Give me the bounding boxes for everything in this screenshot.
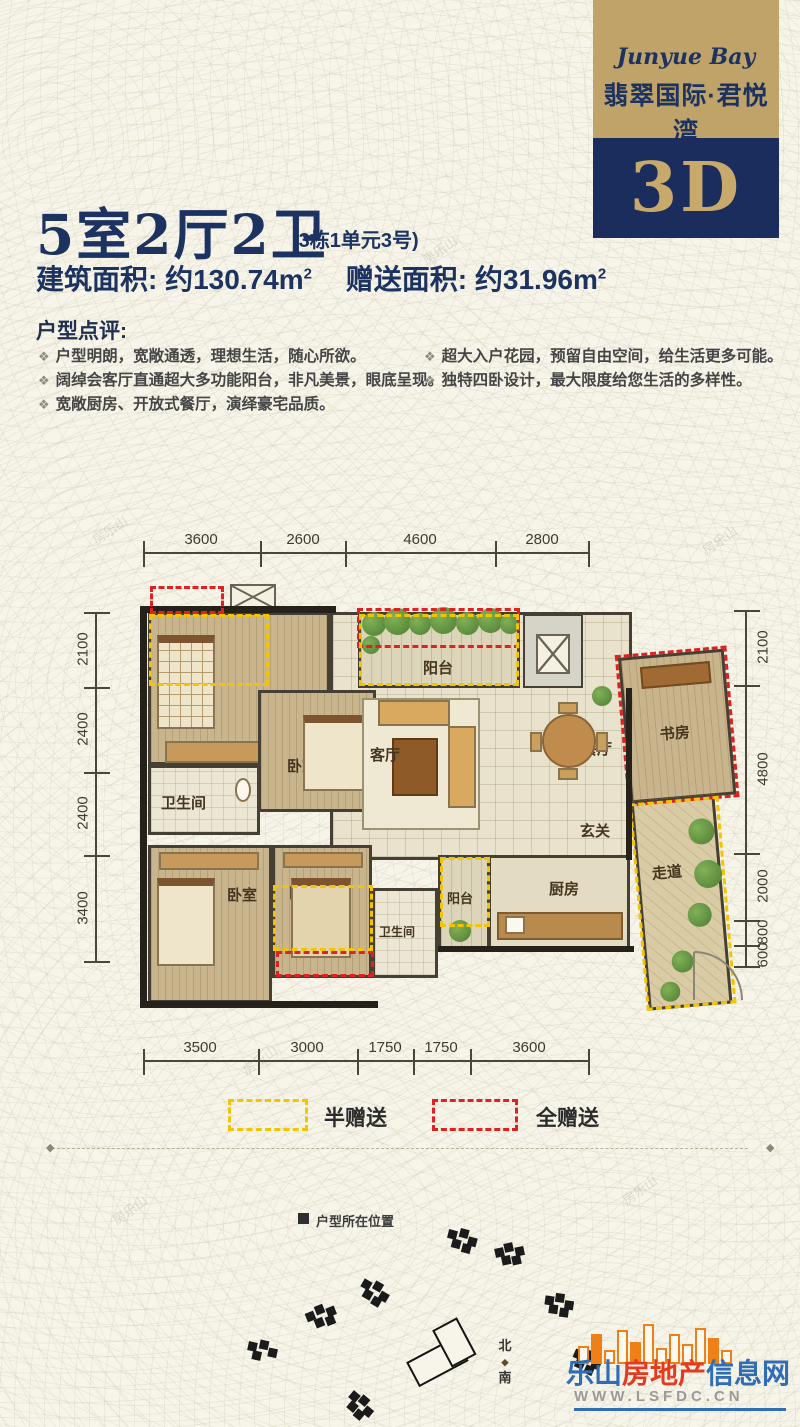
logo-name: 乐山房地产信息网 bbox=[566, 1352, 790, 1392]
north-arrow: 北 ◆ 南 bbox=[492, 1338, 518, 1386]
build-area-sup: 2 bbox=[304, 266, 312, 283]
wall-segment bbox=[626, 688, 632, 860]
plant-icon bbox=[409, 613, 431, 635]
watermark-text: 房乐山 bbox=[698, 521, 741, 559]
brand-banner-gold-panel: Junyue Bay 翡翠国际·君悦湾 bbox=[593, 0, 779, 138]
brand-banner: Junyue Bay 翡翠国际·君悦湾 3D bbox=[593, 0, 779, 238]
bed-icon bbox=[291, 878, 351, 958]
plant-icon bbox=[687, 902, 713, 928]
room-label: 卫生间 bbox=[161, 792, 206, 813]
dim-tick bbox=[413, 1049, 415, 1075]
area-line: 建筑面积: 约130.74m2 赠送面积: 约31.96m2 bbox=[36, 258, 606, 298]
location-legend-label: 户型所在位置 bbox=[316, 1211, 394, 1230]
room-balcony-small: 阳台 bbox=[438, 855, 490, 950]
room-bedroom-bottom-left: 卧室 bbox=[148, 845, 272, 1003]
chair-icon bbox=[558, 768, 578, 780]
room-label: 书房 bbox=[659, 721, 691, 745]
dim-label: 2800 bbox=[525, 531, 558, 548]
dim-line-bottom: 3500 3000 1750 1750 3600 bbox=[143, 1060, 590, 1062]
wall-segment bbox=[140, 1001, 378, 1008]
dim-tick bbox=[84, 855, 110, 857]
dim-label: 2600 bbox=[286, 531, 319, 548]
bed-icon bbox=[303, 715, 365, 791]
wall-segment bbox=[438, 946, 634, 952]
dim-tick bbox=[588, 1049, 590, 1075]
dim-label: 600 bbox=[755, 942, 772, 967]
room-bath-upper: 卫生间 bbox=[148, 765, 260, 835]
bullet-icon: ❖ bbox=[38, 349, 50, 364]
dim-tick bbox=[588, 541, 590, 567]
unit-note: (3栋1单元3号) bbox=[292, 224, 419, 253]
plant-icon bbox=[659, 981, 681, 1003]
plant-icon bbox=[362, 612, 386, 636]
dim-label: 1750 bbox=[424, 1039, 457, 1056]
sofa-icon bbox=[448, 726, 476, 808]
room-label: 厨房 bbox=[549, 878, 579, 899]
review-item-text: 阔绰会客厅直通超大多功能阳台，非凡美景，眼底呈现。 bbox=[56, 372, 444, 389]
logo-suffix: 信息网 bbox=[706, 1358, 790, 1389]
review-item-text: 宽敞厨房、开放式餐厅，演绎豪宅品质。 bbox=[56, 396, 335, 413]
dim-label: 2000 bbox=[755, 869, 772, 902]
build-area-label: 建筑面积: bbox=[36, 264, 157, 295]
dim-label: 2400 bbox=[75, 796, 92, 829]
brand-script-name: Junyue Bay bbox=[593, 44, 779, 70]
divider-line bbox=[52, 1148, 748, 1149]
plant-icon bbox=[362, 636, 380, 654]
room-label: 客厅 bbox=[370, 744, 400, 765]
dim-tick bbox=[84, 772, 110, 774]
build-area-value: 约130.74m bbox=[165, 264, 304, 295]
bullet-icon: ❖ bbox=[38, 397, 50, 412]
location-legend-swatch bbox=[298, 1213, 309, 1224]
south-label: 南 bbox=[492, 1370, 518, 1386]
room-study: 书房 bbox=[618, 649, 736, 804]
watermark-text: 房乐山 bbox=[108, 1191, 151, 1229]
plant-icon bbox=[456, 612, 479, 635]
chair-icon bbox=[558, 702, 578, 714]
room-label: 卫生间 bbox=[379, 923, 415, 940]
room-label: 阳台 bbox=[423, 657, 453, 678]
dim-tick bbox=[143, 1049, 145, 1075]
plant-icon bbox=[478, 608, 503, 633]
building-cluster bbox=[544, 1295, 554, 1305]
dim-tick bbox=[258, 1049, 260, 1075]
building-cluster bbox=[247, 1341, 258, 1352]
dim-tick bbox=[84, 687, 110, 689]
room-label: 卧室 bbox=[227, 884, 257, 905]
plant-icon bbox=[687, 817, 715, 845]
dim-tick bbox=[84, 961, 110, 963]
dim-tick bbox=[143, 541, 145, 567]
dim-label: 3000 bbox=[290, 1039, 323, 1056]
plant-icon bbox=[693, 859, 723, 889]
sofa-icon bbox=[378, 700, 450, 726]
dim-line-top: 3600 2600 4600 2800 bbox=[143, 552, 590, 554]
dim-label: 4800 bbox=[755, 752, 772, 785]
desk-icon bbox=[640, 661, 712, 689]
dim-tick bbox=[495, 541, 497, 567]
room-label: 走道 bbox=[651, 860, 683, 884]
review-item: ❖户型明朗，宽敞通透，理想生活，随心所欲。 bbox=[38, 344, 366, 366]
dim-tick bbox=[470, 1049, 472, 1075]
highlighted-building-outline bbox=[399, 1314, 490, 1399]
poster-page: 房乐山 房乐山 房乐山 房乐山 房乐山 房乐山 Junyue Bay 翡翠国际·… bbox=[0, 0, 800, 1427]
review-item: ❖超大入户花园，预留自由空间，给生活更多可能。 bbox=[424, 344, 783, 366]
north-label: 北 bbox=[492, 1338, 518, 1354]
review-item-text: 户型明朗，宽敞通透，理想生活，随心所欲。 bbox=[56, 348, 366, 365]
watermark-text: 房乐山 bbox=[88, 511, 131, 549]
dim-label: 3500 bbox=[183, 1039, 216, 1056]
gift-area-label: 赠送面积: bbox=[346, 264, 467, 295]
bed-icon bbox=[157, 878, 215, 966]
review-item-text: 超大入户花园，预留自由空间，给生活更多可能。 bbox=[442, 348, 783, 365]
room-bedroom-top-mid: 卧室 bbox=[258, 690, 376, 812]
sink-icon bbox=[505, 916, 525, 934]
dim-label: 1750 bbox=[368, 1039, 401, 1056]
wall-segment bbox=[140, 606, 336, 613]
dim-tick bbox=[734, 685, 760, 687]
dim-tick bbox=[734, 610, 760, 612]
plant-icon bbox=[384, 608, 411, 635]
building-cluster bbox=[447, 1229, 458, 1240]
review-item: ❖宽敞厨房、开放式餐厅，演绎豪宅品质。 bbox=[38, 392, 335, 414]
watermark-text: 房乐山 bbox=[618, 1171, 661, 1209]
entry-door-arc-icon bbox=[690, 948, 744, 1002]
dim-label: 2400 bbox=[75, 712, 92, 745]
review-item-text: 独特四卧设计，最大限度给您生活的多样性。 bbox=[442, 372, 752, 389]
dim-label: 2100 bbox=[755, 630, 772, 663]
legend-half-gift-label: 半赠送 bbox=[324, 1102, 387, 1132]
toilet-icon bbox=[235, 778, 251, 802]
chair-icon bbox=[596, 732, 608, 752]
dim-label: 800 bbox=[755, 919, 772, 944]
logo-middle: 房地产 bbox=[622, 1358, 706, 1389]
bullet-icon: ❖ bbox=[424, 349, 436, 364]
building-cluster bbox=[360, 1278, 372, 1290]
diamond-icon: ◆ bbox=[766, 1141, 774, 1154]
dim-label: 3400 bbox=[75, 891, 92, 924]
plant-icon bbox=[449, 920, 471, 942]
logo-underline bbox=[574, 1408, 786, 1411]
review-heading: 户型点评: bbox=[36, 315, 127, 345]
wardrobe-icon bbox=[159, 852, 259, 870]
plant-icon bbox=[500, 614, 520, 634]
north-diamond-icon: ◆ bbox=[492, 1354, 518, 1370]
diamond-icon: ◆ bbox=[46, 1141, 54, 1154]
brand-banner-navy-panel: 3D bbox=[593, 138, 779, 238]
dim-tick bbox=[260, 541, 262, 567]
plant-icon bbox=[430, 607, 457, 634]
building-cluster bbox=[348, 1390, 361, 1403]
building-cluster bbox=[494, 1247, 505, 1258]
dim-line-left: 2100 2400 2400 3400 bbox=[95, 612, 97, 963]
plant-icon bbox=[592, 686, 612, 706]
chair-icon bbox=[530, 732, 542, 752]
room-bedroom-bottom-mid: 卧室 bbox=[272, 845, 372, 978]
legend-half-gift-swatch bbox=[228, 1099, 308, 1131]
dim-tick bbox=[357, 1049, 359, 1075]
badge-3d: 3D bbox=[630, 148, 742, 228]
dim-tick bbox=[345, 541, 347, 567]
gift-area-sup: 2 bbox=[598, 266, 606, 283]
dim-label: 3600 bbox=[184, 531, 217, 548]
review-item: ❖阔绰会客厅直通超大多功能阳台，非凡美景，眼底呈现。 bbox=[38, 368, 443, 390]
bullet-icon: ❖ bbox=[424, 373, 436, 388]
room-bath-lower: 卫生间 bbox=[372, 888, 438, 978]
logo-city: 乐山 bbox=[566, 1358, 622, 1389]
dim-tick bbox=[84, 612, 110, 614]
room-label: 阳台 bbox=[447, 888, 473, 907]
legend-full-gift-label: 全赠送 bbox=[536, 1102, 599, 1132]
room-kitchen: 厨房 bbox=[488, 855, 630, 950]
bullet-icon: ❖ bbox=[38, 373, 50, 388]
wall-segment bbox=[140, 606, 147, 1008]
gift-area-value: 约31.96m bbox=[475, 264, 598, 295]
logo-url: WWW.LSFDC.CN bbox=[574, 1388, 744, 1405]
review-item: ❖独特四卧设计，最大限度给您生活的多样性。 bbox=[424, 368, 752, 390]
legend-full-gift-swatch bbox=[432, 1099, 518, 1131]
dim-label: 4600 bbox=[403, 531, 436, 548]
stair-shaft-icon bbox=[536, 634, 570, 674]
dim-label: 3600 bbox=[512, 1039, 545, 1056]
building-cluster bbox=[305, 1311, 317, 1323]
bed-icon bbox=[157, 635, 215, 729]
room-label: 玄关 bbox=[580, 820, 610, 841]
wardrobe-icon bbox=[283, 852, 363, 868]
wardrobe-icon bbox=[165, 741, 261, 763]
dim-label: 2100 bbox=[75, 632, 92, 665]
dining-table-icon bbox=[542, 714, 596, 768]
